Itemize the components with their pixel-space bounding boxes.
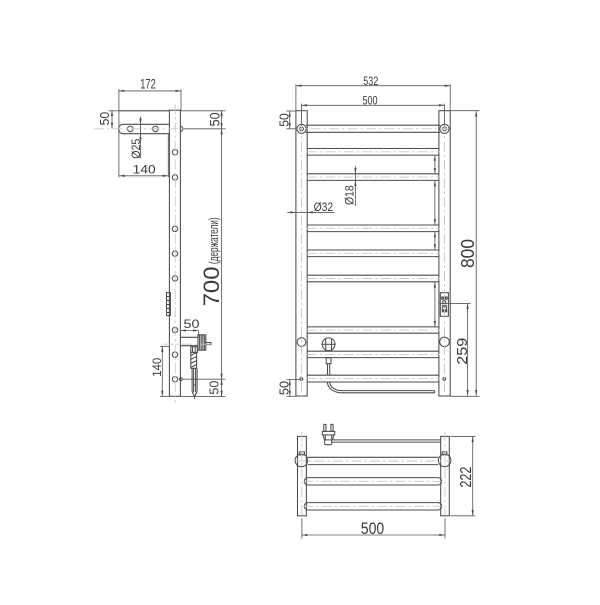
svg-text:50: 50 (97, 112, 112, 126)
svg-text:222: 222 (458, 467, 475, 488)
svg-text:140: 140 (133, 163, 156, 177)
svg-text:50: 50 (207, 112, 223, 126)
svg-text:500: 500 (361, 520, 385, 538)
svg-text:Ø18: Ø18 (345, 185, 357, 205)
svg-text:50: 50 (276, 381, 291, 395)
svg-text:800: 800 (458, 239, 478, 268)
svg-text:Ø25: Ø25 (129, 138, 143, 158)
svg-text:50: 50 (206, 381, 221, 395)
svg-text:50: 50 (277, 113, 292, 126)
svg-text:532: 532 (363, 74, 378, 88)
svg-text:50: 50 (184, 319, 200, 331)
svg-text:259: 259 (454, 338, 471, 365)
svg-text:172: 172 (140, 76, 156, 91)
svg-text:Ø32: Ø32 (314, 202, 334, 214)
svg-text:140: 140 (150, 357, 164, 376)
svg-text:500: 500 (363, 93, 378, 107)
